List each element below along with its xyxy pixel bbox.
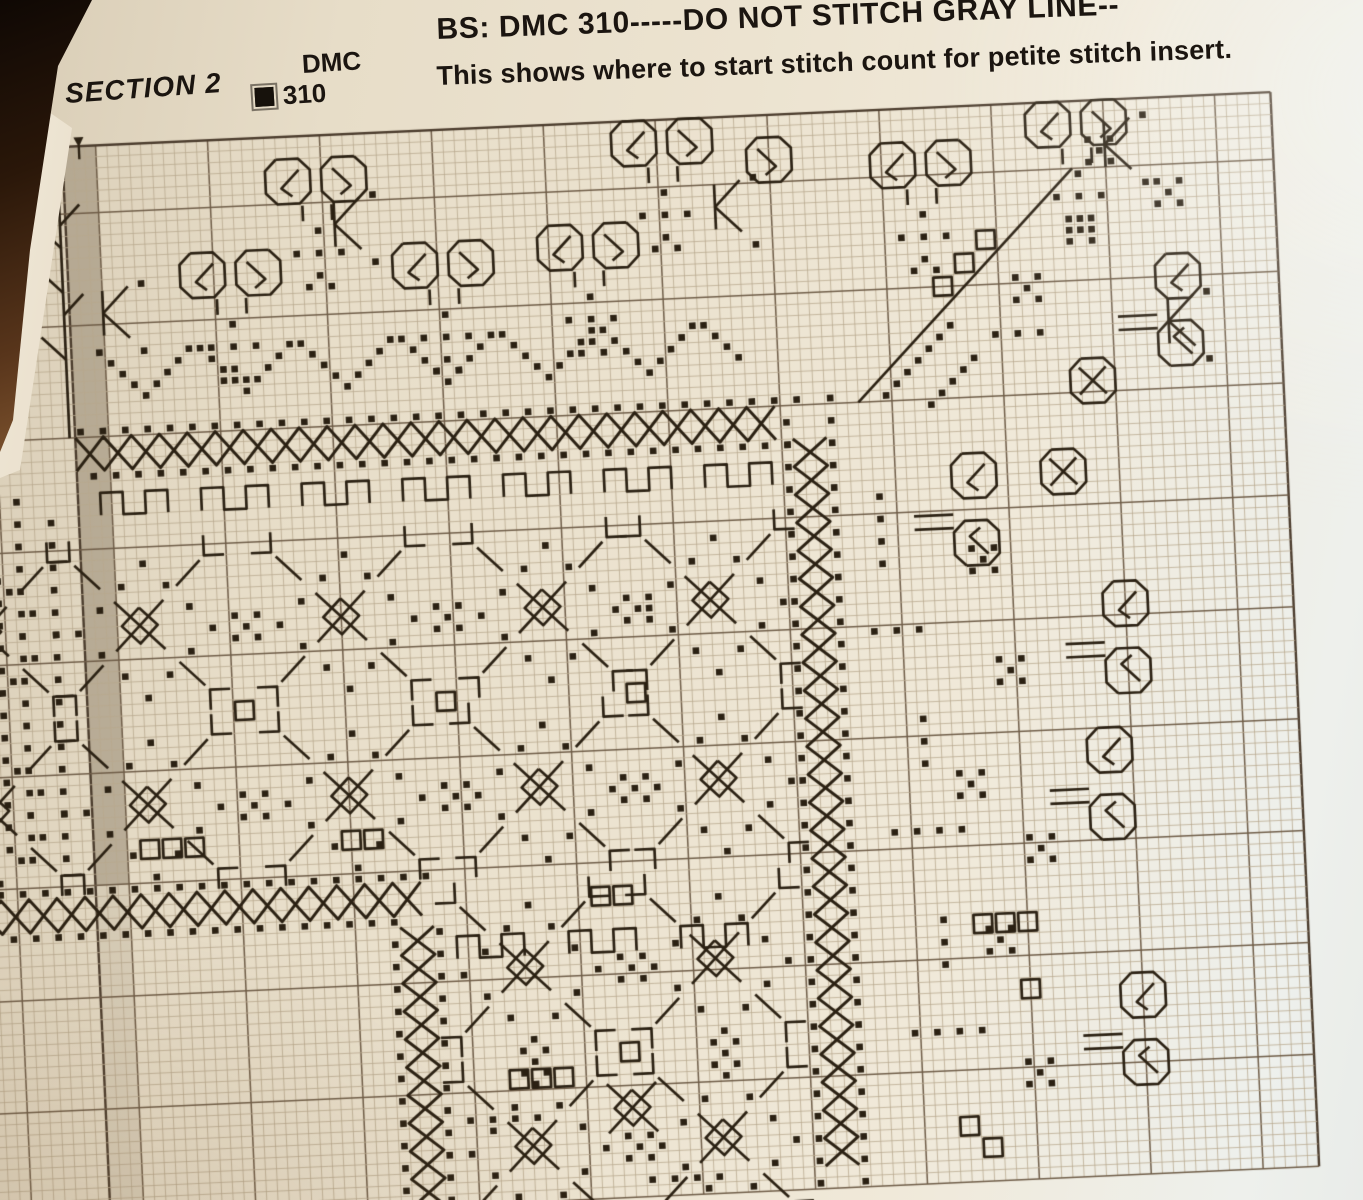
stitch-chart-canvas: [0, 0, 1363, 1200]
filled-square-icon: [254, 87, 274, 107]
legend-color-code: 310: [282, 78, 327, 112]
legend-entry: 310: [254, 78, 327, 113]
legend-header: DMC: [301, 45, 362, 80]
photographed-pattern-page: SECTION 2 DMC 310 BS: DMC 310-----DO NOT…: [0, 0, 1363, 1200]
